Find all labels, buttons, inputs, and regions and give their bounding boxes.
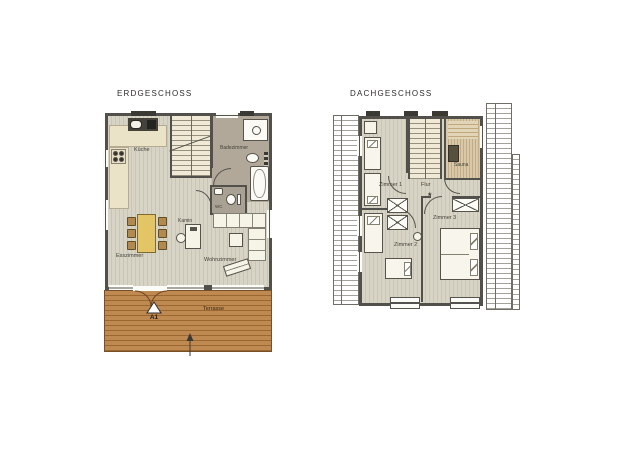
toilet-tank xyxy=(237,194,241,205)
bathtub-basin xyxy=(253,169,266,198)
pillow-icon xyxy=(367,216,380,225)
burner-icon xyxy=(119,157,124,162)
deck-rail xyxy=(341,116,342,304)
wall xyxy=(211,116,213,168)
pillow-icon xyxy=(367,140,378,148)
entrance-marker-icon xyxy=(146,301,162,314)
wardrobe xyxy=(387,198,408,213)
door-arc xyxy=(424,196,442,214)
dining-table xyxy=(137,214,156,253)
burner-icon xyxy=(113,157,118,162)
pillow-icon xyxy=(404,262,411,276)
bed xyxy=(385,258,412,279)
room-label-sauna: Sauna xyxy=(454,163,468,168)
room-label-wc: WC xyxy=(215,205,223,210)
window-sill xyxy=(131,111,156,116)
door-arc xyxy=(444,178,460,194)
roof-deck-right xyxy=(486,103,512,310)
sauna-bench xyxy=(448,121,478,139)
toilet xyxy=(226,194,236,205)
floor-plan-dachgeschoss: Zimmer 1 Flur * Sauna xyxy=(359,116,483,306)
sofa xyxy=(213,213,266,228)
bathtub xyxy=(250,166,269,201)
window xyxy=(216,113,238,118)
room-label-terrasse: Terrasse xyxy=(203,307,224,313)
dining-chair xyxy=(158,217,167,226)
stove xyxy=(111,149,126,164)
wardrobe xyxy=(387,215,408,230)
washbasin xyxy=(246,153,259,163)
wall xyxy=(406,119,408,173)
bedside-table xyxy=(364,121,377,134)
dining-chair xyxy=(158,241,167,250)
dining-chair xyxy=(158,229,167,238)
deck-rail xyxy=(495,104,496,309)
room-label-flur: Flur xyxy=(421,183,430,189)
room-label-esszimmer: Esszimmer xyxy=(116,254,143,260)
room-label-zimmer2: Zimmer 2 xyxy=(394,243,417,249)
window-sill xyxy=(432,111,448,116)
pillow-icon xyxy=(367,196,378,204)
kitchen-appliance xyxy=(147,120,156,129)
burner-icon xyxy=(113,151,118,156)
pillow-icon xyxy=(470,233,478,250)
fireplace xyxy=(185,224,201,249)
staircase xyxy=(170,116,212,178)
room-label-zimmer3: Zimmer 3 xyxy=(433,216,456,222)
roof-deck-right-step xyxy=(512,154,520,310)
entrance-marker-label: A1 xyxy=(146,315,162,322)
side-table xyxy=(229,233,243,247)
burner-icon xyxy=(119,151,124,156)
pillow-icon xyxy=(470,259,478,276)
window xyxy=(103,150,108,167)
bed xyxy=(364,213,383,253)
roof-deck-left xyxy=(333,115,359,305)
plan-title-erdgeschoss: ERDGESCHOSS xyxy=(117,89,192,98)
dining-chair xyxy=(127,241,136,250)
bed-divider xyxy=(441,254,469,255)
window xyxy=(357,252,362,272)
north-arrow-icon xyxy=(183,332,197,358)
window xyxy=(103,200,108,230)
stair-cut-line xyxy=(169,133,216,151)
double-bed xyxy=(440,228,480,280)
window xyxy=(480,126,485,148)
shower-drain-icon xyxy=(252,126,261,135)
window-sill xyxy=(366,111,380,116)
sauna-heater xyxy=(448,145,459,162)
window xyxy=(357,136,362,156)
dining-chair xyxy=(127,229,136,238)
plan-title-dachgeschoss: DACHGESCHOSS xyxy=(350,89,432,98)
door-arc xyxy=(388,176,406,194)
wc-sink xyxy=(214,188,223,195)
wall xyxy=(421,198,423,302)
bed xyxy=(364,137,381,170)
room-sauna: Sauna xyxy=(444,119,480,180)
floorplan-image: ERDGESCHOSS Küche Badezimmer xyxy=(0,0,640,452)
dining-chair xyxy=(127,217,136,226)
room-wc: WC xyxy=(210,185,247,215)
sofa-corner xyxy=(248,228,266,261)
dormer-window xyxy=(450,297,480,309)
staircase-upper xyxy=(408,119,442,179)
room-label-badezimmer: Badezimmer xyxy=(220,146,248,151)
dormer-window xyxy=(390,297,420,309)
floor-plan-erdgeschoss: Küche Badezimmer WC Kamin xyxy=(105,113,272,290)
window-sill xyxy=(404,111,418,116)
stool xyxy=(413,232,422,241)
wardrobe xyxy=(452,198,479,212)
room-label-kueche: Küche xyxy=(134,148,150,154)
room-label-wohnzimmer: Wohnzimmer xyxy=(204,258,236,264)
window xyxy=(357,216,362,236)
fireplace-opening xyxy=(190,227,197,231)
wall xyxy=(421,196,431,198)
window xyxy=(267,210,272,238)
bed xyxy=(364,173,381,206)
stair-divider xyxy=(425,119,426,179)
fireplace-stove-icon xyxy=(176,233,186,243)
kitchen-worktop xyxy=(128,118,158,131)
kitchen-sink xyxy=(130,120,142,129)
window-sill xyxy=(240,111,254,116)
stair-divider xyxy=(191,116,192,176)
shower xyxy=(243,119,268,141)
